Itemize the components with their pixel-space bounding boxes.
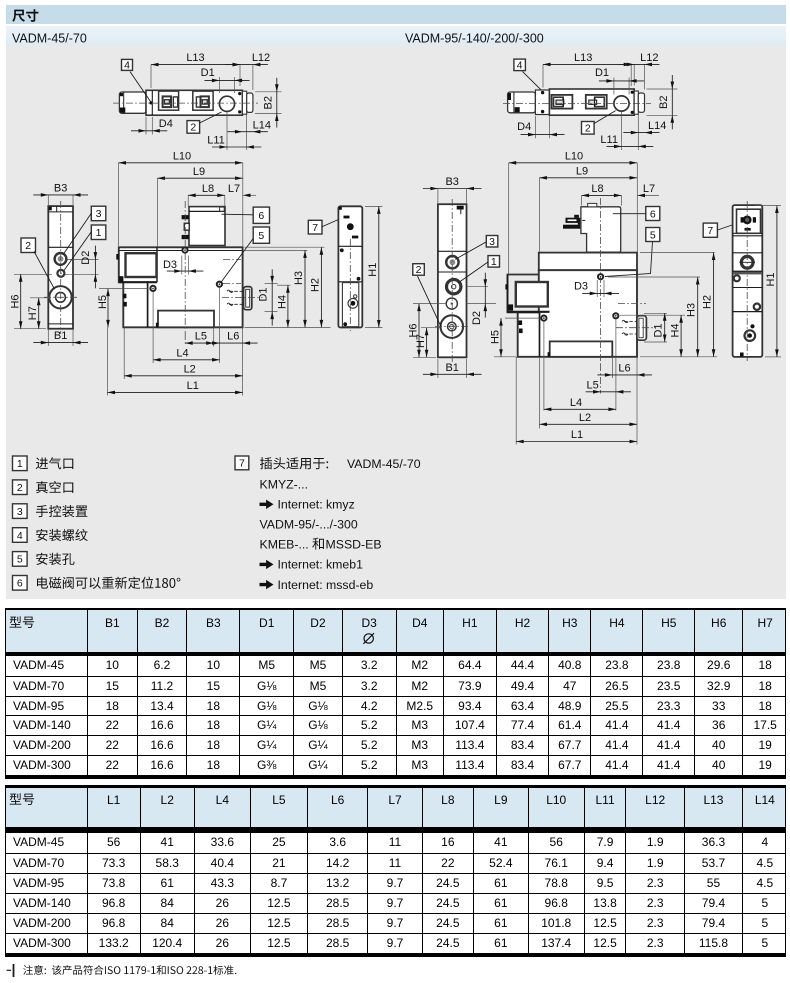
svg-text:5: 5 (17, 554, 23, 566)
svg-text:B3: B3 (445, 176, 458, 188)
svg-text:2: 2 (17, 482, 23, 494)
svg-text:1: 1 (491, 256, 497, 268)
svg-text:D4: D4 (159, 118, 173, 130)
svg-text:MSSD-EB: MSSD-EB (326, 538, 382, 552)
svg-text:L14: L14 (648, 120, 666, 132)
svg-text:VADM-95/-.../-300: VADM-95/-.../-300 (260, 518, 358, 532)
svg-text:L9: L9 (576, 165, 588, 177)
svg-text:L1: L1 (187, 380, 199, 392)
svg-text:B2: B2 (658, 95, 670, 108)
svg-text:VADM-95/-140/-200/-300: VADM-95/-140/-200/-300 (405, 31, 544, 45)
svg-text:L2: L2 (184, 363, 196, 375)
svg-text:H6: H6 (9, 294, 21, 308)
svg-text:H5: H5 (97, 295, 109, 309)
svg-text:L12: L12 (640, 52, 658, 64)
svg-text:L6: L6 (618, 363, 630, 375)
svg-text:H1: H1 (765, 272, 777, 286)
svg-text:2: 2 (190, 122, 196, 134)
svg-text:L4: L4 (176, 347, 188, 359)
svg-text:L7: L7 (228, 183, 240, 195)
svg-text:D1: D1 (201, 67, 215, 79)
svg-text:L9: L9 (193, 166, 205, 178)
svg-text:H2: H2 (701, 295, 713, 309)
svg-text:H5: H5 (490, 330, 502, 344)
svg-text:2: 2 (585, 123, 591, 135)
svg-text:B3: B3 (54, 183, 67, 195)
svg-text:5: 5 (258, 230, 264, 242)
svg-text:VADM-45/-70: VADM-45/-70 (347, 457, 421, 471)
svg-text:L7: L7 (643, 183, 655, 195)
svg-text:L5: L5 (586, 379, 598, 391)
svg-text:3: 3 (17, 506, 23, 518)
svg-text:H3: H3 (293, 271, 305, 285)
svg-text:4: 4 (124, 60, 130, 72)
svg-text:D2: D2 (80, 251, 92, 265)
svg-text:D1: D1 (595, 67, 609, 79)
svg-text:L13: L13 (574, 52, 592, 64)
svg-text:L12: L12 (252, 52, 270, 64)
svg-text:L8: L8 (202, 183, 214, 195)
svg-text:Internet: kmeb1: Internet: kmeb1 (278, 558, 364, 572)
svg-text:D2: D2 (471, 311, 483, 325)
svg-text:H7: H7 (415, 334, 427, 348)
svg-text:1: 1 (96, 227, 102, 239)
svg-text:H1: H1 (367, 263, 379, 277)
svg-text:6: 6 (650, 208, 656, 220)
svg-text:L4: L4 (570, 397, 582, 409)
svg-text:7: 7 (707, 225, 713, 237)
svg-text:B1: B1 (445, 362, 458, 374)
svg-text:3: 3 (96, 208, 102, 220)
svg-text:L5: L5 (195, 331, 207, 343)
svg-text:6: 6 (258, 210, 264, 222)
svg-text:3: 3 (489, 236, 495, 248)
svg-text:H4: H4 (277, 295, 289, 309)
svg-text:2: 2 (416, 264, 422, 276)
svg-text:H7: H7 (27, 306, 39, 320)
svg-text:B1: B1 (54, 330, 67, 342)
svg-text:VADM-45/-70: VADM-45/-70 (12, 31, 87, 45)
svg-text:5: 5 (650, 229, 656, 241)
svg-text:6: 6 (17, 578, 23, 590)
svg-text:4: 4 (517, 60, 523, 72)
svg-text:Internet: mssd-eb: Internet: mssd-eb (278, 578, 374, 592)
svg-text:L10: L10 (565, 150, 583, 162)
svg-text:KMEB-...: KMEB-... (260, 538, 309, 552)
svg-text:7: 7 (239, 458, 245, 470)
svg-text:D1: D1 (653, 323, 665, 337)
svg-text:L6: L6 (227, 331, 239, 343)
svg-text:L1: L1 (571, 429, 583, 441)
svg-text:KMYZ-...: KMYZ-... (260, 477, 309, 491)
svg-text:2: 2 (25, 240, 31, 252)
svg-text:7: 7 (312, 222, 318, 234)
svg-text:L11: L11 (600, 134, 618, 146)
svg-text:H4: H4 (669, 323, 681, 337)
svg-text:L11: L11 (207, 135, 225, 147)
svg-text:L2: L2 (579, 412, 591, 424)
svg-text:D3: D3 (163, 259, 177, 271)
svg-text:H3: H3 (685, 303, 697, 317)
svg-text:4: 4 (17, 530, 23, 542)
svg-text:L13: L13 (186, 52, 204, 64)
svg-text:D3: D3 (574, 281, 588, 293)
svg-text:H2: H2 (309, 278, 321, 292)
svg-text:B2: B2 (262, 96, 274, 109)
svg-text:L14: L14 (253, 119, 271, 131)
svg-text:L10: L10 (173, 150, 191, 162)
svg-text:Internet: kmyz: Internet: kmyz (278, 498, 355, 512)
svg-text:D4: D4 (517, 121, 531, 133)
svg-text:L8: L8 (591, 183, 603, 195)
svg-text:D1: D1 (258, 287, 270, 301)
svg-text:1: 1 (17, 458, 23, 470)
